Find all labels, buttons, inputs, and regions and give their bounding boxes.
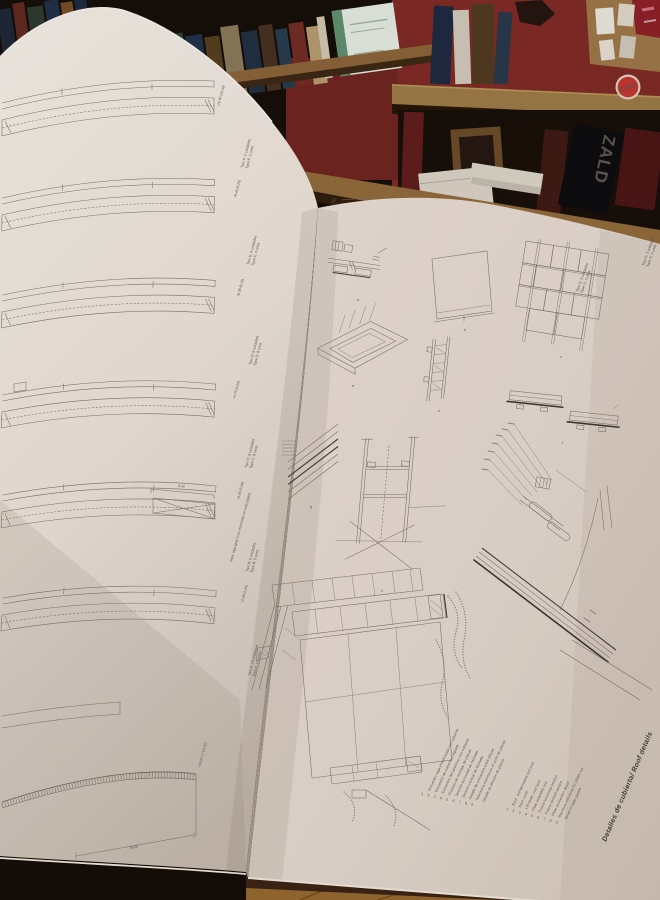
photo-vignette (0, 0, 660, 900)
bookstore-photo: STOP ZALD (0, 0, 660, 900)
